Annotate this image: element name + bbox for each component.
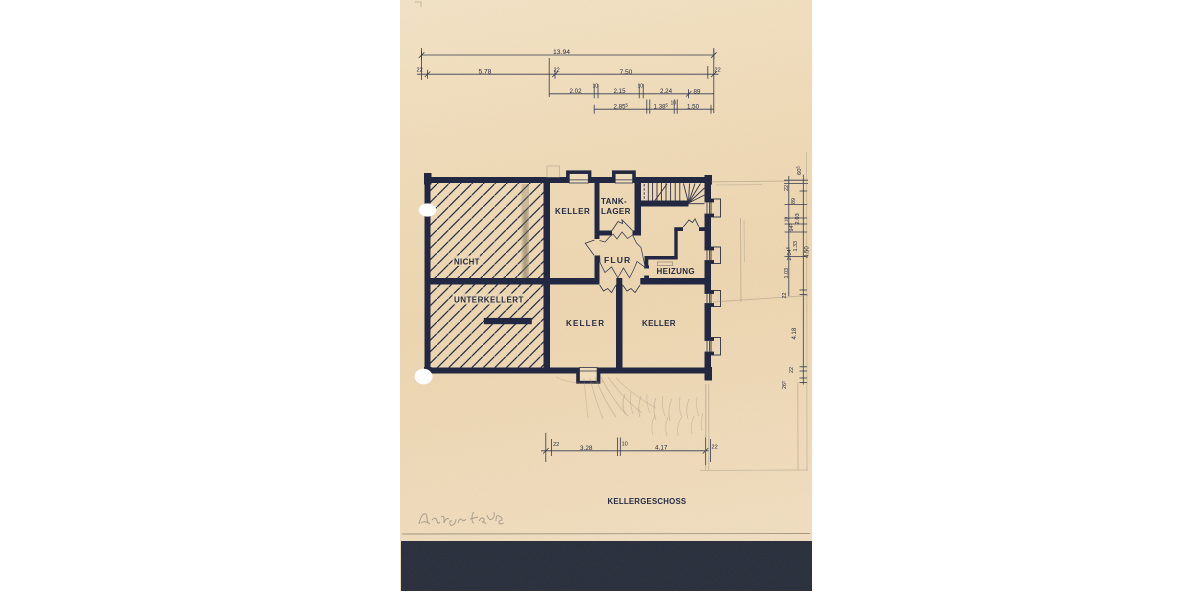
svg-text:2.15: 2.15 — [614, 88, 627, 95]
svg-text:KELLER: KELLER — [555, 207, 590, 216]
svg-text:4.17: 4.17 — [655, 445, 668, 452]
svg-text:10: 10 — [622, 442, 628, 448]
svg-text:7.50: 7.50 — [620, 69, 633, 76]
svg-text:5.78: 5.78 — [479, 69, 492, 76]
svg-text:TANK-: TANK- — [601, 197, 627, 206]
svg-text:2.02: 2.02 — [570, 88, 583, 95]
svg-text:89: 89 — [791, 198, 797, 204]
svg-text:1.03: 1.03 — [784, 268, 790, 279]
svg-text:22: 22 — [417, 68, 423, 74]
svg-text:3.28: 3.28 — [580, 445, 593, 452]
svg-text:22: 22 — [782, 293, 788, 299]
svg-text:KELLERGESCHOSS: KELLERGESCHOSS — [608, 497, 687, 506]
svg-text:22: 22 — [554, 68, 560, 74]
svg-text:HEIZUNG: HEIZUNG — [657, 267, 695, 276]
svg-text:FLUR: FLUR — [604, 255, 631, 265]
svg-text:10: 10 — [784, 216, 789, 222]
svg-text:LAGER: LAGER — [601, 207, 631, 216]
svg-text:2.24: 2.24 — [660, 88, 673, 95]
svg-text:10: 10 — [593, 84, 599, 90]
svg-text:UNTERKELLERT: UNTERKELLERT — [454, 296, 524, 305]
svg-text:10: 10 — [638, 84, 644, 90]
svg-text:NICHT: NICHT — [454, 257, 480, 266]
svg-text:1.33: 1.33 — [793, 241, 799, 252]
svg-text:22: 22 — [784, 185, 790, 191]
svg-text:22: 22 — [715, 68, 721, 74]
svg-text:22: 22 — [712, 445, 718, 451]
svg-text:22: 22 — [789, 367, 795, 373]
svg-text:4.50: 4.50 — [805, 246, 811, 258]
svg-text:4.18: 4.18 — [792, 327, 798, 339]
svg-text:KELLER: KELLER — [642, 319, 676, 328]
svg-text:1.50: 1.50 — [687, 103, 700, 110]
svg-text:2.03: 2.03 — [795, 213, 801, 224]
svg-text:89: 89 — [694, 89, 701, 96]
svg-text:22: 22 — [553, 442, 559, 448]
svg-text:KELLER: KELLER — [566, 319, 605, 328]
svg-text:10: 10 — [671, 101, 677, 107]
svg-text:13.94: 13.94 — [553, 49, 570, 56]
